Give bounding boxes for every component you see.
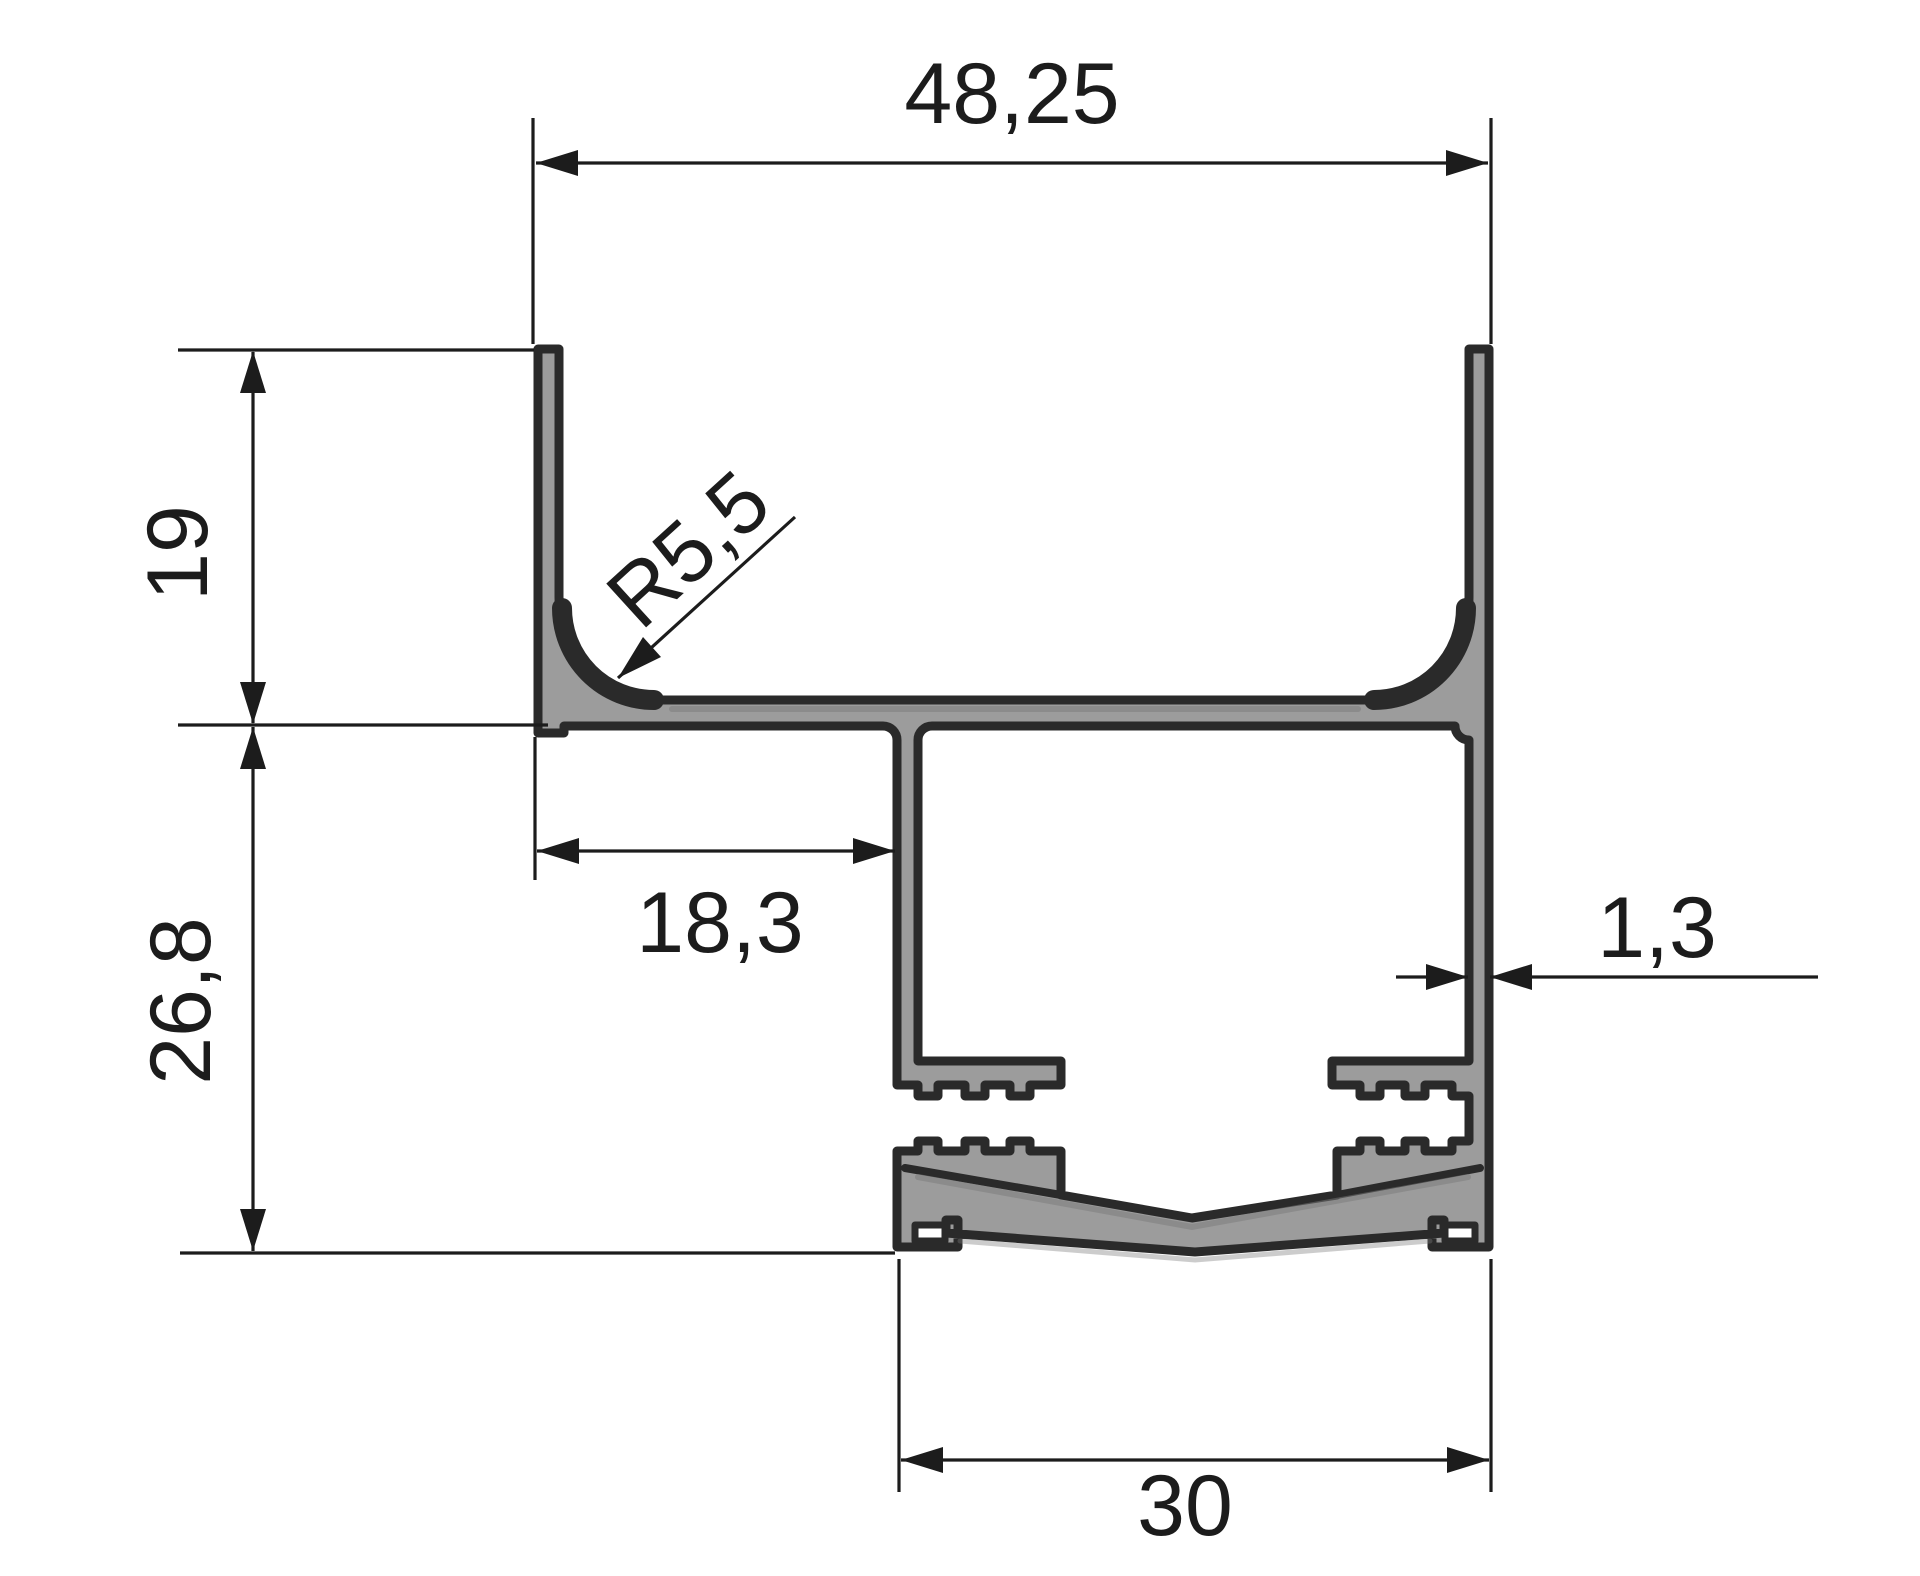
arrowhead-left (536, 150, 578, 176)
arrowhead-down (240, 1209, 266, 1251)
dim-width-top: 48,25 (533, 46, 1491, 344)
profile-body (538, 349, 1489, 1260)
right-foot-pocket (1445, 1225, 1475, 1241)
arrowhead-left (1490, 964, 1532, 990)
dim-height-upper: 19 (130, 350, 548, 725)
dim-label-height-lower: 26,8 (133, 917, 229, 1084)
drawing-canvas: 48,25 19 26,8 R5,5 18,3 1,3 (0, 0, 1920, 1576)
arrowhead-right (1447, 1447, 1489, 1473)
arrowhead-right (1426, 964, 1468, 990)
arrowhead-right (1446, 150, 1488, 176)
dim-radius: R5,5 (589, 453, 795, 678)
left-foot-pocket (915, 1225, 945, 1241)
arrowhead-left (901, 1447, 943, 1473)
dim-label-wall-thickness: 1,3 (1597, 880, 1717, 976)
dim-label-radius: R5,5 (589, 453, 788, 646)
dim-label-inset-left: 18,3 (636, 875, 803, 971)
arrowhead-right (853, 838, 895, 864)
dim-height-lower: 26,8 (133, 727, 895, 1253)
dim-label-width-bottom: 30 (1137, 1458, 1233, 1554)
profile-drawing: 48,25 19 26,8 R5,5 18,3 1,3 (0, 0, 1920, 1576)
dim-label-width-top: 48,25 (904, 46, 1119, 142)
dim-label-height-upper: 19 (130, 505, 226, 601)
arrowhead-up (240, 351, 266, 393)
dim-inset-left: 18,3 (535, 737, 895, 971)
arrowhead-down (240, 682, 266, 724)
arrowhead-left (537, 838, 579, 864)
profile-outline (538, 349, 1489, 1252)
dim-wall-thickness: 1,3 (1396, 880, 1818, 990)
dim-width-bottom: 30 (899, 1259, 1491, 1554)
arrowhead-up (240, 727, 266, 769)
